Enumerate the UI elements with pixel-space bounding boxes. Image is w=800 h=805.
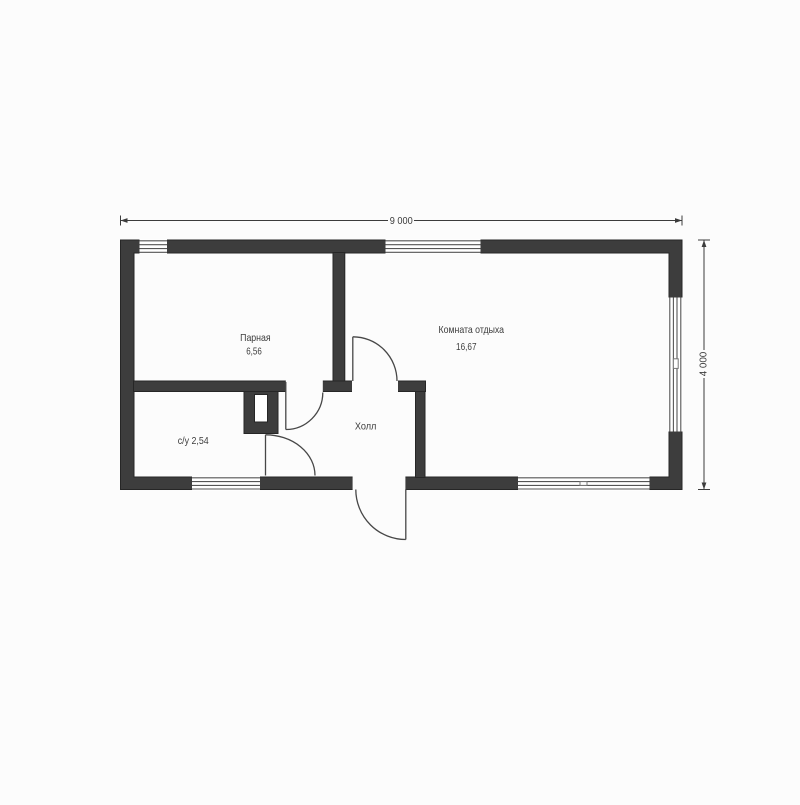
svg-text:9 000: 9 000 <box>390 216 413 227</box>
svg-text:4 000: 4 000 <box>698 351 709 376</box>
svg-text:Парная: Парная <box>240 333 271 344</box>
svg-text:с/у 2,54: с/у 2,54 <box>178 436 209 447</box>
svg-text:Холл: Холл <box>355 422 377 433</box>
svg-text:6,56: 6,56 <box>246 346 262 357</box>
svg-text:Комната отдыха: Комната отдыха <box>439 325 505 336</box>
svg-text:16,67: 16,67 <box>456 342 477 353</box>
